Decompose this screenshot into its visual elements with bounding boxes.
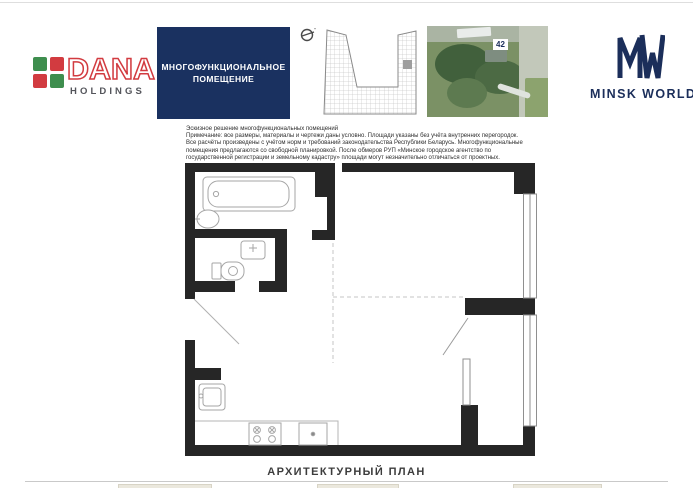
- minsk-world-logo: MINSK WORLD: [590, 33, 690, 115]
- highlighted-unit-cell: [403, 60, 412, 69]
- dana-square-red: [50, 57, 64, 71]
- window-right-top: [524, 194, 537, 298]
- building-footprint-diagram: [312, 27, 420, 119]
- dana-square-red: [33, 74, 47, 88]
- disclaimer-line: Эскизное решение многофункциональных пом…: [186, 126, 542, 133]
- dana-holdings-logo: DANA HOLDINGS: [33, 53, 163, 101]
- wc-door-swing: [194, 299, 239, 344]
- balcony-door: [443, 318, 470, 405]
- building-outline: [324, 30, 416, 114]
- dana-wordmark: DANA: [67, 49, 161, 89]
- wc-sink-icon: [241, 241, 265, 259]
- disclaimer-line: Все расчёты произведены с учётом норм и …: [186, 140, 542, 147]
- disclaimer-text: Эскизное решение многофункциональных пом…: [186, 126, 542, 162]
- footer-stub-box: [513, 484, 602, 488]
- dana-name: DANA: [67, 53, 155, 86]
- dana-square-green: [33, 57, 47, 71]
- plan-sheet: DANA HOLDINGS МНОГОФУНКЦИОНАЛЬНОЕ ПОМЕЩЕ…: [0, 0, 693, 488]
- footer-stub-box: [118, 484, 212, 488]
- kitchen-sink-icon: [199, 384, 225, 410]
- dana-subtitle: HOLDINGS: [70, 86, 145, 97]
- disclaimer-line: государственной регистрации и земельному…: [186, 155, 542, 162]
- dana-square-green: [50, 74, 64, 88]
- premises-title-box: МНОГОФУНКЦИОНАЛЬНОЕ ПОМЕЩЕНИЕ: [157, 27, 290, 119]
- dana-squares-icon: [33, 57, 64, 88]
- stove-icon: [249, 423, 281, 445]
- floor-plan: [185, 163, 545, 458]
- aerial-forest: [447, 78, 487, 108]
- aerial-site-photo: 42: [427, 26, 548, 117]
- premises-title-line1: МНОГОФУНКЦИОНАЛЬНОЕ: [161, 61, 285, 73]
- footer-stub-box: [317, 484, 399, 488]
- window-right-bottom: [524, 315, 537, 426]
- bathtub-icon: [203, 177, 295, 211]
- washbasin-icon: [195, 210, 219, 228]
- top-divider: [0, 2, 693, 3]
- plan-caption: АРХИТЕКТУРНЫЙ ПЛАН: [0, 466, 693, 478]
- footer-divider: [25, 481, 668, 482]
- building-number-badge: 42: [493, 39, 508, 50]
- premises-title-line2: ПОМЕЩЕНИЕ: [193, 73, 254, 85]
- mw-monogram-icon: [615, 33, 665, 79]
- aerial-building: [485, 50, 507, 62]
- free-plan-dashed-lines: [333, 243, 465, 363]
- toilet-icon: [212, 262, 244, 280]
- minsk-world-name: MINSK WORLD: [590, 87, 690, 101]
- disclaimer-line: помещения предлагаются со свободной план…: [186, 148, 542, 155]
- oven-icon: [299, 423, 327, 445]
